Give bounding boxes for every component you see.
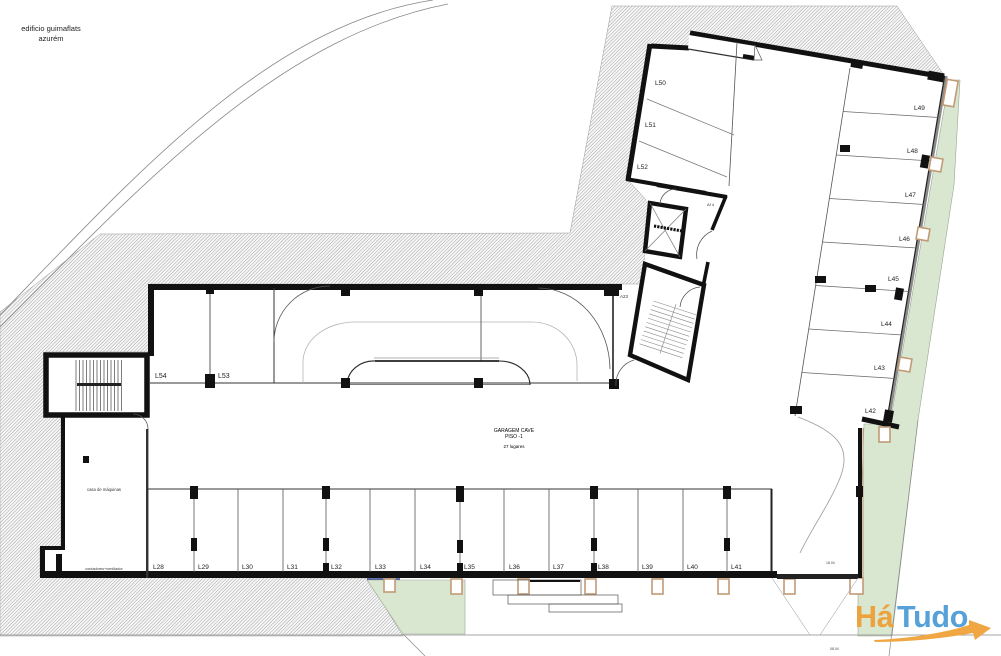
svg-text:L38: L38 (598, 564, 609, 571)
svg-text:L30: L30 (242, 564, 253, 571)
svg-text:L53: L53 (218, 373, 230, 380)
svg-text:L42: L42 (865, 408, 876, 415)
svg-text:L48: L48 (907, 148, 918, 155)
svg-text:L50: L50 (655, 80, 666, 87)
svg-text:A23: A23 (620, 294, 629, 299)
svg-text:L45: L45 (888, 276, 899, 283)
svg-text:18.04: 18.04 (826, 561, 835, 565)
svg-text:L35: L35 (464, 564, 475, 571)
svg-text:azurém: azurém (38, 34, 63, 43)
svg-text:L33: L33 (375, 564, 386, 571)
svg-text:L28: L28 (153, 564, 164, 571)
svg-text:L51: L51 (645, 122, 656, 129)
svg-text:L44: L44 (881, 321, 892, 328)
svg-text:L41: L41 (731, 564, 742, 571)
svg-text:L37: L37 (553, 564, 564, 571)
svg-text:contadores+ventilador: contadores+ventilador (85, 567, 123, 571)
svg-text:L43: L43 (874, 365, 885, 372)
svg-text:L54: L54 (155, 373, 167, 380)
svg-text:L49: L49 (914, 105, 925, 112)
svg-text:L36: L36 (509, 564, 520, 571)
svg-text:L39: L39 (642, 564, 653, 571)
svg-text:L47: L47 (905, 192, 916, 199)
svg-text:L31: L31 (287, 564, 298, 571)
svg-text:L52: L52 (637, 164, 648, 171)
svg-text:L34: L34 (420, 564, 431, 571)
svg-text:L32: L32 (331, 564, 342, 571)
svg-text:casa de máquinas: casa de máquinas (87, 487, 121, 492)
svg-text:08.04: 08.04 (830, 647, 839, 651)
svg-text:L29: L29 (198, 564, 209, 571)
svg-text:Há: Há (855, 600, 895, 634)
svg-text:edificio guimaflats: edificio guimaflats (21, 24, 81, 33)
svg-text:Af 4: Af 4 (707, 202, 715, 207)
svg-text:L40: L40 (687, 564, 698, 571)
svg-text:27 lugares: 27 lugares (503, 444, 525, 449)
svg-text:PISO -1: PISO -1 (505, 434, 523, 440)
svg-text:L46: L46 (899, 236, 910, 243)
